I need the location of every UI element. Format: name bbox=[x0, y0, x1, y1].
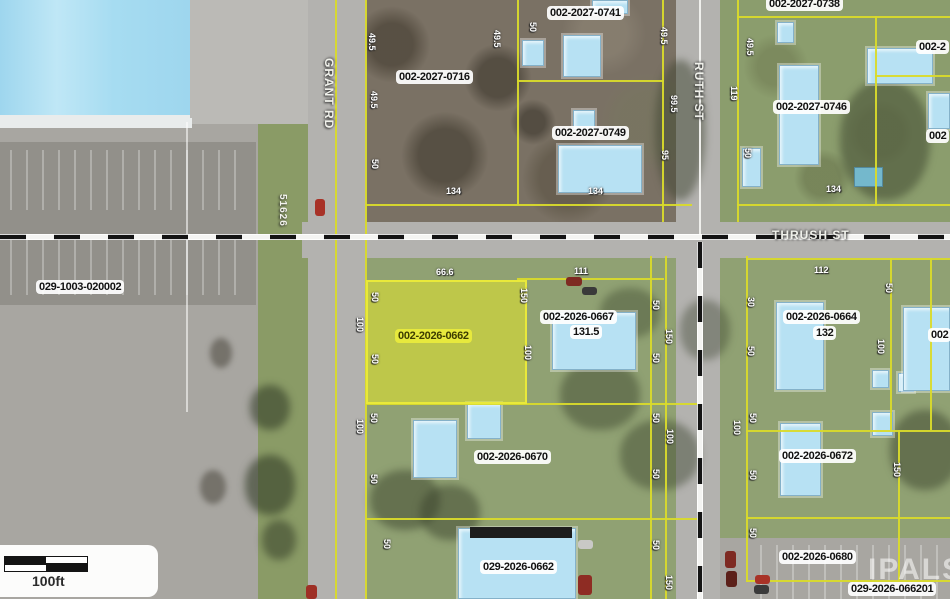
dimension-label: 100 bbox=[665, 429, 674, 444]
dimension-label: 50 bbox=[743, 148, 752, 158]
dimension-label: 66.6 bbox=[436, 268, 454, 277]
dimension-label: 95 bbox=[660, 150, 669, 160]
dimension-label: 150 bbox=[892, 462, 901, 477]
dimension-label: 50 bbox=[651, 540, 660, 550]
parcel-label[interactable]: 002-2027-0749 bbox=[552, 126, 629, 140]
parcel-label[interactable]: 002-2026-0664 bbox=[783, 310, 860, 324]
parcel-label[interactable]: 002-2027-0716 bbox=[396, 70, 473, 84]
dimension-label: 50 bbox=[370, 292, 379, 302]
dimension-label: 119 bbox=[729, 86, 738, 101]
dimension-label: 50 bbox=[651, 300, 660, 310]
dimension-label: 49.5 bbox=[369, 91, 378, 109]
dimension-label: 50 bbox=[748, 413, 757, 423]
dimension-label: 50 bbox=[651, 469, 660, 479]
parcel-label[interactable]: 002-2 bbox=[916, 40, 949, 54]
parcel-label[interactable]: 029-2026-0662 bbox=[480, 560, 557, 574]
dimension-label: 50 bbox=[528, 22, 537, 32]
dimension-label: 50 bbox=[369, 413, 378, 423]
dimension-label: 50 bbox=[382, 539, 391, 549]
dimension-label: 49.5 bbox=[367, 33, 376, 51]
dimension-label: 100 bbox=[355, 419, 364, 434]
dimension-label: 50 bbox=[748, 528, 757, 538]
dimension-label: 100 bbox=[732, 420, 741, 435]
dimension-label: 49.5 bbox=[745, 38, 754, 56]
label-layer: 029-1003-020002002-2027-0716002-2027-074… bbox=[0, 0, 950, 599]
dimension-label: 50 bbox=[651, 353, 660, 363]
dimension-label: 150 bbox=[664, 329, 673, 344]
dimension-label: 100 bbox=[355, 317, 364, 332]
dimension-label: 150 bbox=[519, 288, 528, 303]
parcel-label[interactable]: 002 bbox=[926, 129, 949, 143]
scale-bar-segment bbox=[4, 556, 88, 564]
dimension-label: 134 bbox=[826, 185, 841, 194]
dimension-label: 111 bbox=[574, 267, 588, 276]
parcel-label[interactable]: 029-1003-020002 bbox=[36, 280, 124, 294]
dimension-label: 50 bbox=[369, 474, 378, 484]
address-marker: 51626 bbox=[277, 194, 288, 227]
dimension-label: 134 bbox=[588, 187, 603, 196]
street-label: GRANT RD bbox=[322, 58, 336, 129]
dimension-label: 50 bbox=[370, 354, 379, 364]
scale-bar-label: 100ft bbox=[32, 573, 65, 589]
parcel-label[interactable]: 002-2027-0738 bbox=[766, 0, 843, 11]
dimension-label: 150 bbox=[664, 575, 673, 590]
parcel-label[interactable]: 002-2026-0672 bbox=[779, 449, 856, 463]
dimension-label: 50 bbox=[746, 346, 755, 356]
parcel-label[interactable]: 002-2027-0746 bbox=[773, 100, 850, 114]
street-label: THRUSH ST bbox=[772, 228, 850, 242]
dimension-label: 50 bbox=[748, 470, 757, 480]
dimension-label: 49.5 bbox=[659, 27, 668, 45]
dimension-label: 50 bbox=[651, 413, 660, 423]
parcel-label[interactable]: 002-2026-0662 bbox=[395, 329, 472, 343]
parcel-label[interactable]: 002-2026-0680 bbox=[779, 550, 856, 564]
gis-parcel-map[interactable]: 029-1003-020002002-2027-0716002-2027-074… bbox=[0, 0, 950, 599]
parcel-label[interactable]: 002-2026-0670 bbox=[474, 450, 551, 464]
dimension-label: 99.5 bbox=[669, 95, 678, 113]
street-label: RUTH ST bbox=[692, 62, 706, 121]
parcel-label[interactable]: 131.5 bbox=[570, 325, 602, 339]
scale-bar-box: 100ft bbox=[0, 545, 158, 597]
watermark: IPALS bbox=[868, 553, 950, 587]
dimension-label: 112 bbox=[814, 266, 829, 275]
parcel-label[interactable]: 002 bbox=[928, 328, 950, 342]
parcel-label[interactable]: 002-2027-0741 bbox=[547, 6, 624, 20]
dimension-label: 50 bbox=[884, 283, 893, 293]
parcel-label[interactable]: 002-2026-0667 bbox=[540, 310, 617, 324]
dimension-label: 100 bbox=[523, 345, 532, 360]
parcel-label[interactable]: 132 bbox=[813, 326, 836, 340]
scale-bar-segment bbox=[4, 564, 88, 572]
dimension-label: 50 bbox=[370, 159, 379, 169]
dimension-label: 49.5 bbox=[492, 30, 501, 48]
dimension-label: 100 bbox=[876, 339, 885, 354]
dimension-label: 134 bbox=[446, 187, 461, 196]
dimension-label: 30 bbox=[746, 297, 755, 307]
